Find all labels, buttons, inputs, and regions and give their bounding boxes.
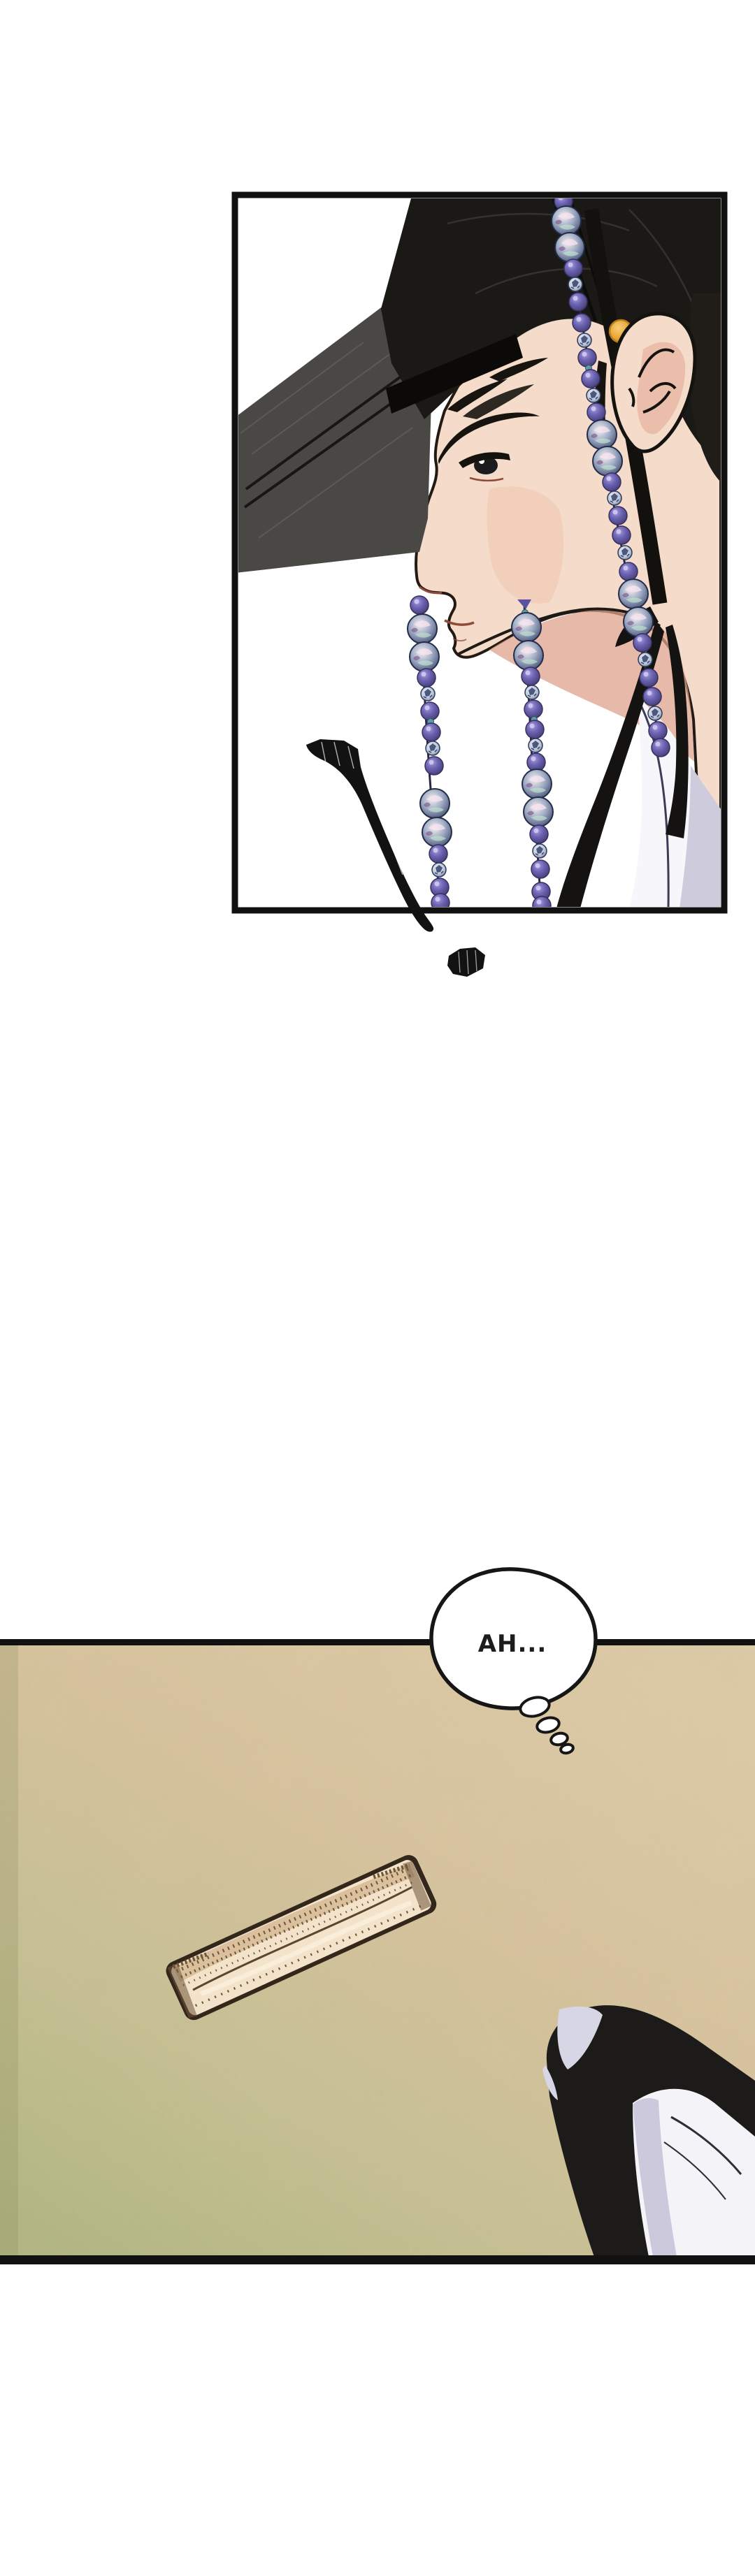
bead: [618, 546, 632, 560]
bead: [514, 641, 543, 670]
bead: [512, 613, 541, 642]
bead: [528, 738, 542, 752]
bead: [422, 817, 452, 847]
bead: [568, 277, 582, 291]
bead: [564, 259, 582, 277]
comic-page: AH...: [0, 0, 755, 2576]
bead: [612, 526, 631, 544]
bead: [555, 233, 584, 262]
bead: [652, 738, 670, 757]
portrait-panel: [235, 192, 724, 932]
bead: [429, 845, 447, 863]
bead: [522, 667, 540, 685]
ground-panel-top-border: [0, 1639, 755, 1645]
bead: [526, 720, 544, 738]
bead: [603, 473, 621, 491]
bead: [649, 722, 667, 740]
bead: [530, 825, 548, 843]
bead: [619, 579, 648, 609]
bead: [578, 349, 596, 367]
bead: [638, 653, 652, 667]
bead: [569, 293, 587, 311]
bead: [410, 642, 439, 671]
bead: [417, 669, 436, 687]
bead: [533, 844, 547, 858]
bead: [593, 446, 622, 476]
bead: [587, 403, 605, 421]
ground-left-vignette: [0, 1643, 18, 2257]
bubble-text: AH...: [478, 1630, 547, 1658]
bead: [421, 687, 435, 701]
bead: [552, 206, 581, 235]
bead: [607, 491, 621, 505]
ground-panel-bottom-border: [0, 2255, 755, 2264]
bead: [633, 634, 652, 652]
bead: [619, 562, 638, 581]
bead: [408, 614, 437, 643]
bead: [421, 702, 439, 720]
bead: [531, 860, 549, 878]
bead: [640, 669, 658, 687]
bead: [582, 370, 600, 388]
bead: [648, 706, 662, 720]
bead: [573, 314, 591, 332]
ground-panel: AH...: [0, 1569, 755, 2264]
bead: [522, 769, 552, 799]
bead: [525, 685, 539, 699]
bead: [524, 797, 553, 827]
bead: [577, 333, 591, 347]
bead: [426, 741, 440, 755]
bead: [425, 757, 443, 775]
bead: [643, 687, 661, 706]
ink-blob: [447, 947, 485, 977]
bead: [609, 507, 627, 525]
bead: [624, 607, 653, 636]
bead: [432, 863, 446, 877]
bead: [420, 789, 450, 818]
bead: [524, 700, 542, 718]
bead: [587, 420, 617, 449]
bead: [422, 723, 440, 741]
bead: [587, 388, 601, 402]
bead: [410, 596, 429, 614]
comic-page-artwork: AH...: [0, 0, 755, 2576]
